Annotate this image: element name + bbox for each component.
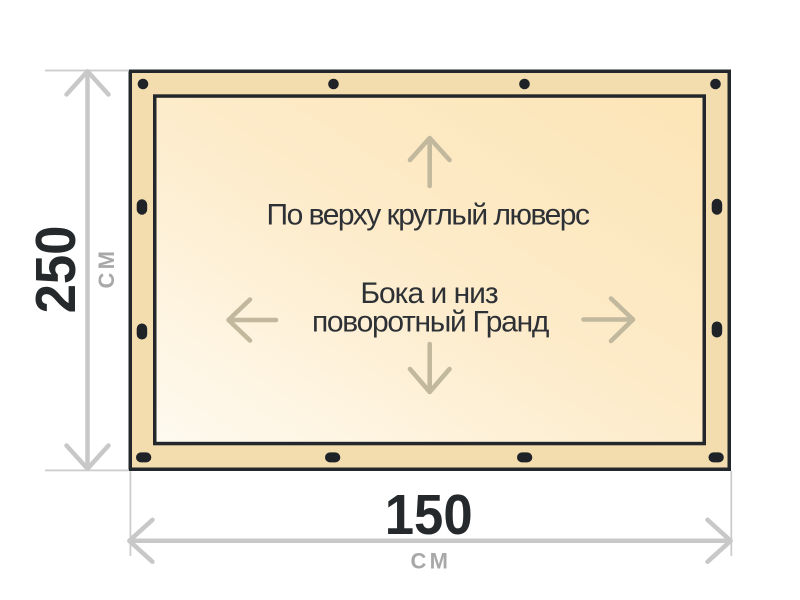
svg-text:СМ: СМ <box>411 549 452 574</box>
svg-text:поворотный Гранд: поворотный Гранд <box>312 306 549 339</box>
svg-text:По верху круглый люверс: По верху круглый люверс <box>267 199 590 232</box>
svg-text:150: 150 <box>385 482 473 546</box>
svg-text:250: 250 <box>23 226 87 314</box>
svg-text:СМ: СМ <box>94 248 119 289</box>
